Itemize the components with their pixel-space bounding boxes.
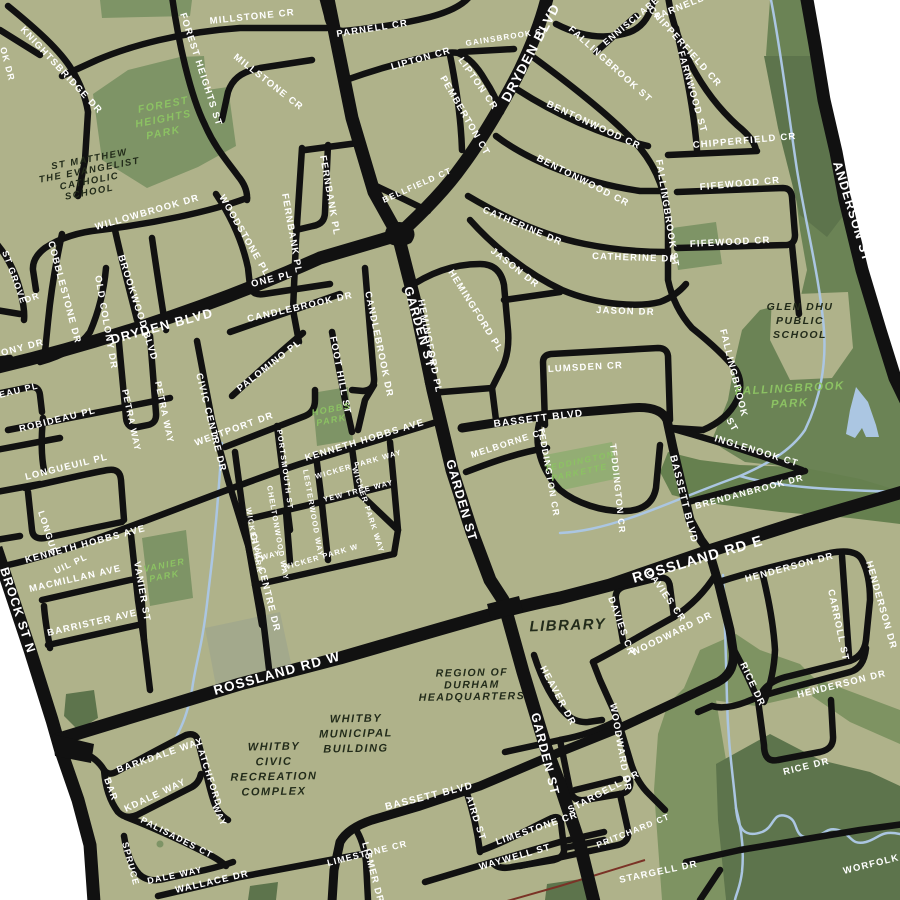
svg-text:GLEN DHU: GLEN DHU xyxy=(767,301,834,313)
svg-text:RECREATION: RECREATION xyxy=(230,770,317,784)
svg-text:WHITBY: WHITBY xyxy=(248,741,301,754)
svg-text:PARK: PARK xyxy=(771,397,809,411)
svg-text:HEADQUARTERS: HEADQUARTERS xyxy=(419,690,526,704)
svg-text:CIVIC: CIVIC xyxy=(255,756,292,769)
svg-text:PUBLIC: PUBLIC xyxy=(776,315,824,327)
svg-text:BUILDING: BUILDING xyxy=(323,742,388,755)
svg-text:JASON DR: JASON DR xyxy=(596,305,655,318)
svg-text:LIBRARY: LIBRARY xyxy=(529,616,607,636)
svg-text:WHITBY: WHITBY xyxy=(330,713,383,726)
svg-text:COMPLEX: COMPLEX xyxy=(241,785,306,798)
svg-text:SCHOOL: SCHOOL xyxy=(773,329,827,341)
svg-text:DURHAM: DURHAM xyxy=(444,679,500,692)
svg-text:MUNICIPAL: MUNICIPAL xyxy=(319,727,393,740)
